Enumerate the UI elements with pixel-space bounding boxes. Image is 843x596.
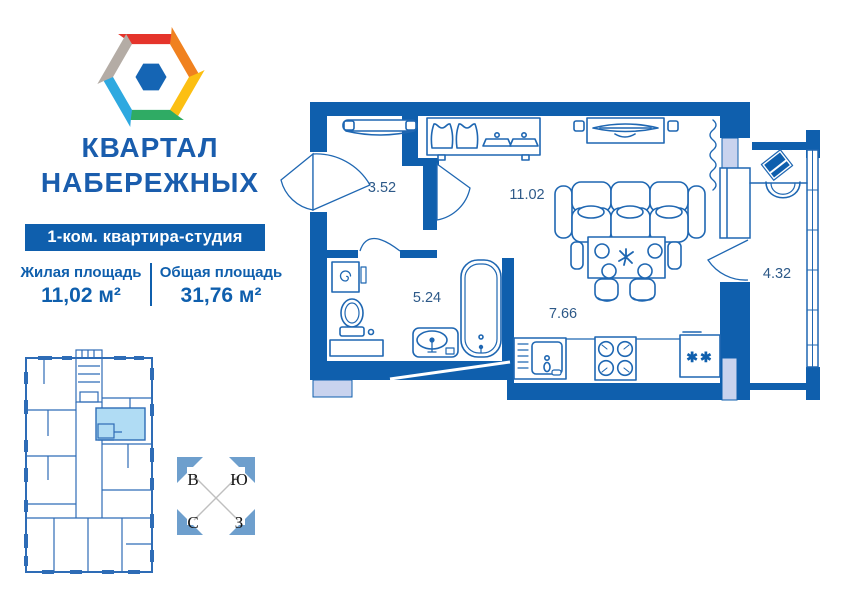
plate-icon (638, 264, 652, 278)
living-area-label: Жилая площадь (12, 264, 150, 281)
window-sill-block (722, 138, 738, 168)
logo-segment-yellow (167, 65, 204, 120)
living-room-area-label: 11.02 (509, 187, 544, 203)
radiator-squiggle-icon (710, 120, 716, 190)
total-area-label: Общая площадь (152, 264, 290, 281)
entry-door-outer-swing (281, 154, 313, 210)
burner-icon (599, 361, 614, 376)
speaker-icon (668, 121, 678, 131)
plate-icon (595, 244, 609, 258)
brand-title-line2: НАБЕРЕЖНЫХ (0, 165, 300, 200)
hallway-area-label: 3.52 (368, 180, 396, 196)
bathtub-icon (461, 260, 501, 357)
compass-south-letter: Ю (230, 470, 247, 489)
dining-table-icon (588, 237, 665, 278)
shoe-bench-icon (343, 120, 417, 135)
tv-stand-icon (574, 118, 678, 143)
balcony-window-unit (720, 168, 750, 238)
burner-icon (618, 342, 633, 357)
total-area-value: 31,76 м² (152, 284, 290, 308)
building-window-ticks (26, 358, 152, 572)
balcony-door-swing (708, 240, 748, 280)
brand-title-line1: КВАРТАЛ (0, 130, 300, 165)
shelf-icon (483, 139, 511, 146)
compass-east-letter: В (187, 470, 198, 489)
kitchen-area-label: 7.66 (549, 306, 577, 322)
column-block (722, 358, 737, 400)
compass-north-letter: С (187, 513, 198, 532)
compass-west-letter: З (235, 513, 244, 532)
hanging-shirt-icon (431, 124, 452, 148)
kitchen-sink-icon (514, 338, 566, 379)
area-info: Жилая площадь 11,02 м² Общая площадь 31,… (12, 261, 290, 308)
living-area-value: 11,02 м² (12, 284, 150, 308)
apartment-floor-plan: 3.52 11.02 5.24 7.66 4.32 ✱✱ (280, 90, 843, 430)
sofa-icon (555, 182, 705, 242)
bathroom-counter (330, 340, 383, 356)
flyer-page: КВАРТАЛ НАБЕРЕЖНЫХ 1-ком. квартира-студи… (0, 0, 843, 596)
entry-door-inner-swing (313, 154, 370, 210)
building-floor-plan (18, 348, 160, 580)
logo-core-hexagon (135, 64, 166, 91)
burner-icon (618, 361, 633, 376)
hanging-shirt-icon (456, 124, 477, 148)
washing-machine-icon (332, 262, 366, 292)
stove-icon (595, 337, 636, 380)
shelf-icon (510, 139, 538, 146)
plate-icon (648, 244, 662, 258)
wardrobe-icon (427, 118, 540, 160)
brand-logo (96, 24, 206, 130)
bathroom-area-label: 5.24 (413, 290, 441, 306)
plate-icon (602, 264, 616, 278)
brand-title: КВАРТАЛ НАБЕРЕЖНЫХ (0, 130, 300, 200)
living-area-cell: Жилая площадь 11,02 м² (12, 261, 150, 308)
laptop-icon (761, 150, 792, 181)
sink-icon (413, 328, 458, 357)
desk-chair-icon (766, 182, 800, 198)
logo-hex-ring (97, 27, 204, 127)
toilet-icon (340, 299, 374, 336)
compass-rose: В Ю С З (172, 452, 260, 540)
freezer-stars-label: ✱✱ (686, 349, 713, 365)
bathroom-door-swing (360, 239, 400, 252)
total-area-cell: Общая площадь 31,76 м² (152, 261, 290, 308)
ledge-block (313, 380, 352, 397)
building-outline (26, 350, 152, 572)
living-room-door-swing (437, 164, 470, 220)
balcony-area-label: 4.32 (763, 266, 791, 282)
speaker-icon (574, 121, 584, 131)
apartment-type-badge: 1-ком. квартира-студия (25, 224, 265, 251)
logo-segment-gray (97, 34, 134, 89)
burner-icon (599, 342, 614, 357)
